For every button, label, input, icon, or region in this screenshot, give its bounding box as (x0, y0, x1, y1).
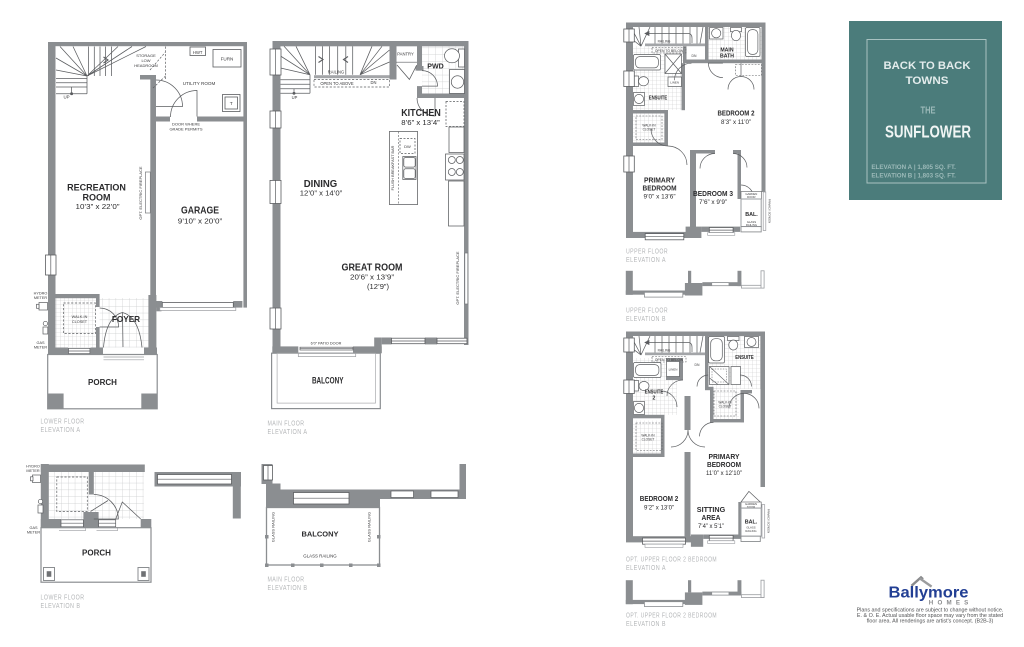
svg-text:GLASS RAILING: GLASS RAILING (367, 512, 372, 542)
svg-text:OPT. ELECTRIC FIREPLACE: OPT. ELECTRIC FIREPLACE (455, 251, 460, 304)
svg-text:CLOSET: CLOSET (643, 128, 656, 132)
svg-text:GRADE PERMITS: GRADE PERMITS (169, 127, 202, 132)
svg-text:HWT: HWT (193, 50, 203, 55)
svg-text:ROOM: ROOM (83, 193, 111, 203)
svg-text:RAILING: RAILING (746, 223, 757, 227)
svg-text:BALCONY: BALCONY (312, 376, 344, 386)
svg-text:GARAGE: GARAGE (181, 205, 219, 217)
svg-text:FOYER: FOYER (112, 315, 140, 324)
svg-text:UP: UP (63, 95, 69, 100)
svg-text:BALCONY: BALCONY (301, 530, 338, 539)
svg-text:(12’9”): (12’9”) (367, 284, 389, 291)
svg-text:DN: DN (692, 54, 697, 58)
svg-text:GLASS RAILING: GLASS RAILING (271, 512, 276, 542)
svg-text:ELEVATION B: ELEVATION B (626, 619, 666, 628)
svg-text:HYDRO: HYDRO (34, 292, 48, 296)
svg-text:FLUSH BREAKFAST BAR: FLUSH BREAKFAST BAR (391, 145, 395, 190)
svg-text:PRIVACY SCREEN: PRIVACY SCREEN (766, 509, 770, 533)
svg-text:ELEVATION A: ELEVATION A (626, 255, 666, 264)
svg-text:12’0” x 14’0”: 12’0” x 14’0” (300, 191, 343, 198)
svg-text:DINING: DINING (304, 178, 338, 190)
svg-text:BEDROOM: BEDROOM (707, 460, 741, 469)
svg-text:BATH: BATH (720, 54, 734, 60)
svg-text:H O M E S: H O M E S (929, 600, 969, 607)
svg-text:CLOSET: CLOSET (72, 320, 88, 324)
svg-text:WALK-IN: WALK-IN (72, 315, 88, 319)
svg-text:RECREATION: RECREATION (67, 183, 126, 193)
svg-text:RAILING: RAILING (658, 349, 671, 353)
svg-text:PORCH: PORCH (82, 549, 111, 558)
svg-text:DN: DN (695, 363, 700, 367)
svg-text:TOWNS: TOWNS (906, 75, 949, 87)
svg-text:10’3” x 22’0”: 10’3” x 22’0” (76, 204, 121, 211)
svg-text:GAS: GAS (29, 526, 37, 530)
svg-text:METER: METER (26, 469, 40, 473)
svg-text:PANTRY: PANTRY (397, 52, 414, 57)
svg-text:GLASS RAILING: GLASS RAILING (303, 554, 337, 559)
svg-text:T: T (230, 101, 233, 107)
svg-text:LINEN: LINEN (670, 81, 679, 85)
svg-text:7’4” x 5’1”: 7’4” x 5’1” (698, 523, 724, 530)
svg-text:ENSUITE: ENSUITE (735, 355, 754, 361)
svg-text:20’6” x 13’9”: 20’6” x 13’9” (350, 275, 395, 282)
svg-text:BEDROOM 2: BEDROOM 2 (640, 494, 679, 503)
svg-text:RAILING: RAILING (658, 40, 671, 44)
svg-text:BEDROOM 3: BEDROOM 3 (693, 189, 733, 198)
svg-text:BEDROOM 2: BEDROOM 2 (718, 109, 755, 118)
svg-text:RAILING: RAILING (745, 529, 756, 533)
svg-text:ELEVATION A | 1,805 SQ. FT.: ELEVATION A | 1,805 SQ. FT. (871, 164, 956, 171)
svg-text:AREA: AREA (702, 513, 721, 522)
svg-text:THE: THE (921, 105, 936, 116)
svg-text:8’3” x 11’0”: 8’3” x 11’0” (721, 119, 751, 126)
svg-text:ELEVATION B: ELEVATION B (41, 601, 81, 610)
svg-text:ELEVATION A: ELEVATION A (268, 427, 308, 436)
svg-text:9’0” x 13’6”: 9’0” x 13’6” (644, 194, 676, 201)
svg-text:6’0” PATIO DOOR: 6’0” PATIO DOOR (311, 341, 342, 345)
svg-text:HYDRO: HYDRO (26, 465, 40, 469)
svg-text:DN: DN (371, 80, 377, 85)
svg-text:8’6” x 13’4”: 8’6” x 13’4” (401, 120, 440, 127)
svg-text:ELEVATION B: ELEVATION B (268, 583, 308, 592)
svg-text:ELEVATION B | 1,803 SQ. FT.: ELEVATION B | 1,803 SQ. FT. (871, 172, 956, 179)
svg-text:ELEVATION A: ELEVATION A (41, 425, 81, 434)
svg-text:BAL.: BAL. (745, 212, 758, 218)
svg-text:DW: DW (404, 144, 411, 149)
svg-text:KITCHEN: KITCHEN (401, 107, 441, 119)
svg-text:2: 2 (653, 396, 656, 402)
svg-text:ELEVATION A: ELEVATION A (626, 563, 666, 572)
svg-text:11’0” x 12’10”: 11’0” x 12’10” (706, 470, 742, 477)
svg-text:HEADROOM: HEADROOM (134, 63, 158, 68)
svg-text:OPEN TO ABOVE: OPEN TO ABOVE (320, 81, 354, 86)
svg-text:ENSUITE: ENSUITE (649, 96, 668, 102)
svg-text:FURN: FURN (221, 57, 234, 62)
svg-text:9’2” x 13’0”: 9’2” x 13’0” (644, 505, 674, 512)
svg-text:BACK TO BACK: BACK TO BACK (884, 60, 971, 72)
svg-text:UTILITY ROOM: UTILITY ROOM (183, 81, 216, 86)
svg-text:ELEVATION B: ELEVATION B (626, 314, 666, 323)
svg-text:9’10” x 20’0”: 9’10” x 20’0” (178, 219, 223, 226)
svg-text:OPT. ELECTRIC FIREPLACE: OPT. ELECTRIC FIREPLACE (138, 166, 143, 219)
svg-text:7’6” x 9’9”: 7’6” x 9’9” (699, 199, 727, 206)
svg-text:PORCH: PORCH (88, 378, 117, 387)
svg-text:GAS: GAS (36, 341, 44, 345)
svg-text:METER: METER (27, 531, 41, 535)
svg-text:METER: METER (34, 296, 48, 300)
svg-text:LINEN: LINEN (669, 368, 678, 372)
svg-text:BEDROOM: BEDROOM (643, 184, 677, 193)
svg-text:GREAT ROOM: GREAT ROOM (342, 262, 403, 274)
svg-text:floor area. All renderings are: floor area. All renderings are artist's … (867, 619, 994, 625)
svg-text:UP: UP (292, 95, 298, 100)
svg-text:RAILING: RAILING (328, 70, 344, 75)
svg-text:OPEN TO BELOW: OPEN TO BELOW (655, 49, 684, 53)
svg-text:CLOSET: CLOSET (642, 438, 655, 442)
svg-text:METER: METER (34, 346, 48, 350)
svg-text:PRIVACY SCREEN: PRIVACY SCREEN (768, 199, 772, 223)
svg-text:SUNFLOWER: SUNFLOWER (885, 122, 971, 142)
svg-text:PWD: PWD (427, 62, 444, 71)
